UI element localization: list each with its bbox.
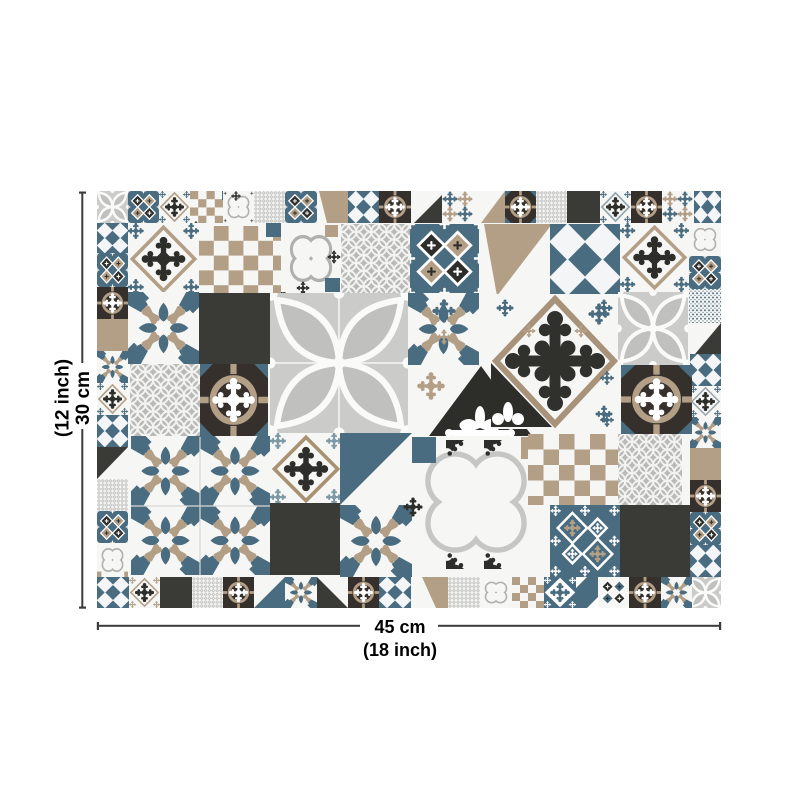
- svg-text:(18 inch): (18 inch): [363, 640, 437, 660]
- svg-text:(12 inch): (12 inch): [53, 359, 74, 437]
- svg-text:30 cm: 30 cm: [73, 371, 94, 425]
- svg-text:45 cm: 45 cm: [374, 617, 425, 637]
